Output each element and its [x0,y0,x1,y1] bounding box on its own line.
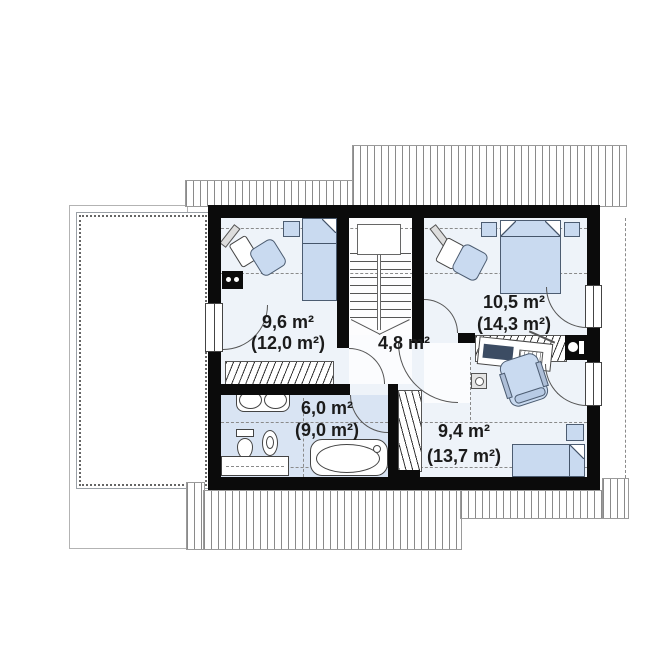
bed-single [302,218,337,301]
bed-double [500,220,561,294]
room-label-area: 4,8 m² [378,333,430,354]
nightstand [566,424,584,441]
bathtub-basin [316,444,380,473]
dresser-knob [226,277,231,282]
bidet-basin [266,436,274,449]
stair-flight-right [381,253,411,323]
terrace-door-frame [205,303,223,352]
wall-left [208,205,221,303]
bed-fold [501,221,516,236]
nightstand [283,221,300,237]
wall-right [587,205,600,285]
roof-band-top-right [352,145,627,207]
room-label-area: 9,4 m² [438,421,490,442]
utility-niche [565,335,587,360]
wardrobe-strip-vertical [398,390,422,472]
stair-landing [357,224,401,255]
bed-linen-line [303,243,336,244]
frame-line [593,286,594,327]
bathtub-drain [373,445,381,453]
wall-top [208,205,600,218]
stair-flight-left [350,253,378,319]
column-circle [475,377,484,386]
stair-stringer [377,253,381,330]
roof-band-bottom-right [460,490,604,519]
window-frame [585,285,602,328]
wall-bedroom-right-bottom [458,333,475,343]
terrace-railing [76,212,210,489]
roof-band-bottom-left [203,490,462,550]
wall-wardrobe-stub [398,470,420,477]
bed-linen-line [501,236,560,237]
counter-dash [226,466,284,467]
room-label-total: (13,7 m²) [427,446,501,467]
wall-stairwell-left [337,218,349,348]
roof-eave-line [625,218,626,478]
utility-panel [579,341,584,354]
window-frame [585,362,602,406]
nightstand [481,222,497,237]
bathtub [310,439,388,476]
frame-line [593,363,594,405]
roof-band-top-left [185,180,354,207]
bed-fold [322,219,336,233]
room-label-area: 6,0 m² [301,398,353,419]
wall-left [208,352,221,490]
bed-fold [545,221,560,236]
bed-single [512,444,585,477]
column-box [471,373,487,389]
room-label-total: (9,0 m²) [295,420,359,441]
room-label-total: (12,0 m²) [251,333,325,354]
wardrobe-strip-bedroom-left [225,361,334,386]
wall-bottom [208,477,600,490]
wall-right [587,328,600,362]
frame-line [214,304,215,351]
wall-stairwell-right [412,218,424,343]
wall-right [587,406,600,490]
monitor [482,344,513,361]
room-label-area: 9,6 m² [262,312,314,333]
washer-drum [568,342,578,352]
room-label-area: 10,5 m² [483,292,545,313]
bed-fold [570,445,584,459]
toilet-tank [236,429,254,437]
bathroom-counter [221,456,289,476]
nightstand [564,222,580,237]
room-label-total: (14,3 m²) [477,314,551,335]
roof-band-right-corner [602,478,629,519]
wall-bathroom-right [388,384,398,477]
dresser-knob [234,277,239,282]
floor-plan: 9,6 m² (12,0 m²) 10,5 m² (14,3 m²) 4,8 m… [0,0,660,660]
wall-bathroom-top [221,384,350,395]
